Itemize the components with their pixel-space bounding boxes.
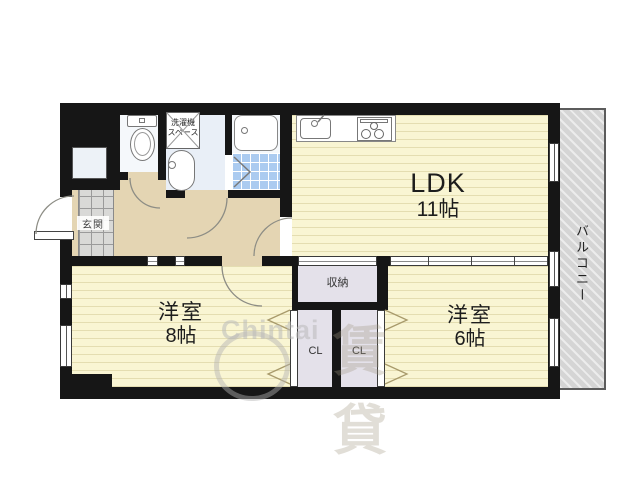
bathtub-drain-icon xyxy=(241,127,248,134)
ldk-size: 11帖 xyxy=(378,198,498,222)
window-balcony-ldk xyxy=(549,143,559,182)
pipe-shaft-box xyxy=(72,147,107,179)
window-balcony-middle xyxy=(549,251,559,287)
entrance-label: 玄関 xyxy=(77,216,109,230)
wall-opening-b xyxy=(175,256,185,266)
closet-right-door-track xyxy=(377,310,385,387)
washbasin-icon xyxy=(168,150,195,191)
wall-top xyxy=(60,103,560,115)
wall-hall-bottom-c xyxy=(185,256,222,266)
entrance-door-leaf xyxy=(34,231,74,240)
bathroom-door-gap xyxy=(225,155,232,190)
closet-left-door-track xyxy=(290,310,298,387)
wall-hall-bottom-a xyxy=(60,256,147,266)
washbasin-faucet-icon xyxy=(168,161,176,169)
closet-left-label: CL xyxy=(300,345,331,357)
room-ldk-label: LDK 11帖 xyxy=(378,168,498,222)
wall-bottom-left-step xyxy=(60,374,112,387)
partition-sliding-door-ldk-western6 xyxy=(390,256,548,266)
laundry-space-label: 洗濯機 スペース xyxy=(167,118,199,138)
stove-burner-right-icon xyxy=(374,129,384,139)
wall-toilet-bottom-a xyxy=(107,172,128,180)
kitchen-faucet-icon xyxy=(311,120,318,127)
toilet-bowl-inner-icon xyxy=(134,132,151,156)
wall-bottom xyxy=(60,387,560,399)
bathroom-tile-floor xyxy=(232,153,280,190)
toilet-button-icon xyxy=(139,118,145,123)
western6-size: 6帖 xyxy=(409,328,531,350)
window-balcony-western6 xyxy=(549,318,559,367)
room-western6-label: 洋室 6帖 xyxy=(409,304,531,350)
storage-label: 収納 xyxy=(298,277,377,289)
window-west-large xyxy=(60,325,72,367)
balcony-label: バルコニー xyxy=(572,224,591,349)
western8-size: 8帖 xyxy=(120,325,242,347)
wall-washroom-bottom-a xyxy=(166,190,185,198)
wall-ldk-left-upper xyxy=(280,103,292,217)
window-west-small xyxy=(60,284,72,299)
wall-storage-bottom xyxy=(292,302,388,310)
ldk-name: LDK xyxy=(378,168,498,198)
wall-closet-middle xyxy=(332,310,341,387)
wall-washroom-bathroom xyxy=(225,103,232,155)
wall-toilet-bottom-b xyxy=(158,172,166,180)
stove-burner-left-icon xyxy=(361,129,371,139)
wall-under-shaft xyxy=(72,179,107,190)
wall-hall-bottom-b xyxy=(158,256,175,266)
storage-sliding-door xyxy=(298,256,377,266)
wall-hall-bottom-d xyxy=(262,256,292,266)
western8-name: 洋室 xyxy=(120,301,242,325)
bathtub-icon xyxy=(234,115,278,151)
floorplan-canvas: バルコニー xyxy=(0,0,640,480)
wall-ldk-bottom-b xyxy=(377,256,390,266)
ldk-door-gap xyxy=(280,217,292,256)
room-western8-label: 洋室 8帖 xyxy=(120,301,242,347)
wall-washroom-bottom-b xyxy=(228,190,280,198)
closet-right-label: CL xyxy=(343,345,375,357)
wall-opening-a xyxy=(147,256,158,266)
wall-toilet-right xyxy=(158,103,166,180)
western6-name: 洋室 xyxy=(409,304,531,328)
